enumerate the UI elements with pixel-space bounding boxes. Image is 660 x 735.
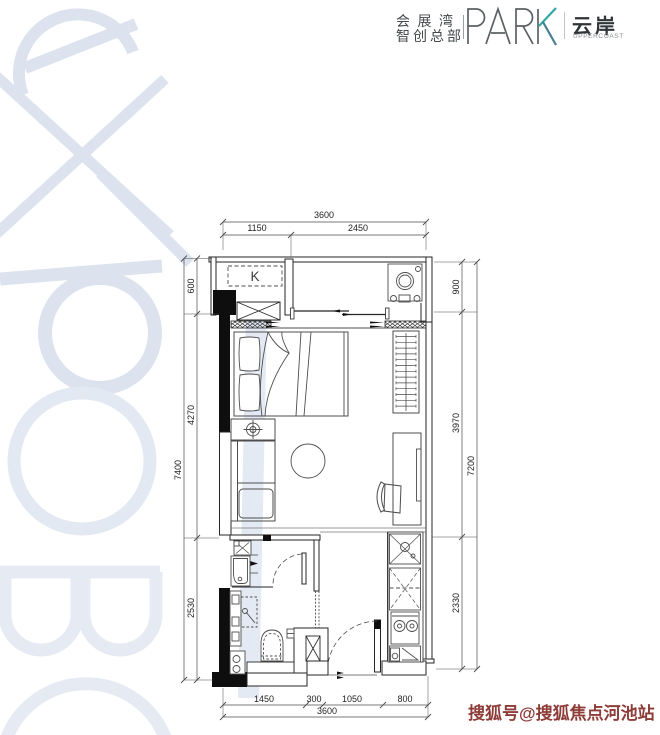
svg-text:1450: 1450 xyxy=(254,694,274,704)
svg-text:600: 600 xyxy=(186,278,196,293)
svg-text:7400: 7400 xyxy=(173,460,183,480)
svg-text:300: 300 xyxy=(306,694,321,704)
svg-text:3970: 3970 xyxy=(451,413,461,433)
svg-text:2450: 2450 xyxy=(348,223,368,233)
svg-text:1150: 1150 xyxy=(247,223,266,233)
svg-text:3600: 3600 xyxy=(317,706,337,716)
svg-text:900: 900 xyxy=(451,279,461,294)
svg-text:2330: 2330 xyxy=(451,593,461,613)
svg-text:4270: 4270 xyxy=(186,405,196,425)
svg-text:3600: 3600 xyxy=(314,210,334,220)
svg-text:7200: 7200 xyxy=(466,456,476,476)
svg-text:2530: 2530 xyxy=(186,598,196,618)
svg-text:1050: 1050 xyxy=(342,694,362,704)
svg-text:800: 800 xyxy=(397,694,412,704)
svg-text:K: K xyxy=(250,269,259,284)
